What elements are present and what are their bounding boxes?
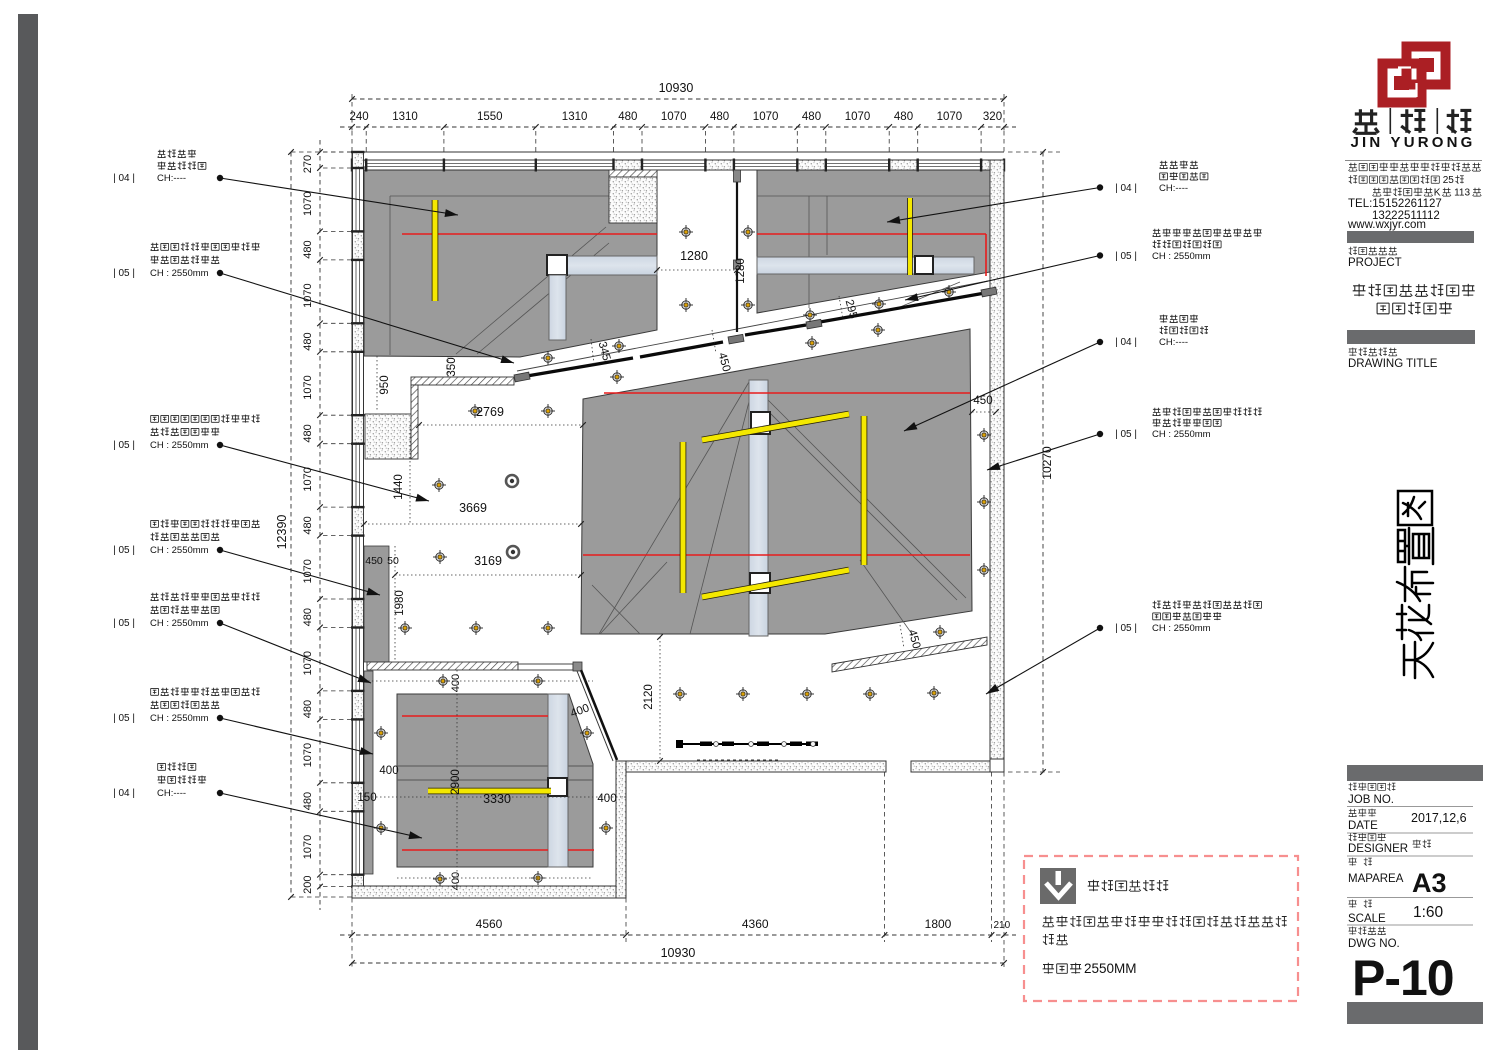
svg-text:SCALE: SCALE (1348, 913, 1386, 925)
svg-text:CH : 2550mm: CH : 2550mm (150, 713, 209, 724)
svg-text:| 04 |: | 04 | (1115, 183, 1137, 194)
svg-text:| 05 |: | 05 | (1115, 623, 1137, 634)
svg-text:K: K (1434, 188, 1441, 199)
svg-text:CH : 2550mm: CH : 2550mm (150, 440, 209, 451)
svg-text:CH : 2550mm: CH : 2550mm (150, 545, 209, 556)
svg-text:CH:----: CH:---- (157, 788, 186, 799)
svg-text:| 04 |: | 04 | (1115, 337, 1137, 348)
svg-text:www.wxjyr.com: www.wxjyr.com (1347, 219, 1426, 231)
svg-text:DATE: DATE (1348, 820, 1378, 832)
svg-text:113: 113 (1454, 188, 1470, 199)
svg-text:| 05 |: | 05 | (1115, 429, 1137, 440)
svg-text:JOB NO.: JOB NO. (1348, 794, 1394, 806)
svg-text:CH:----: CH:---- (1159, 183, 1188, 194)
svg-text:CH : 2550mm: CH : 2550mm (1152, 429, 1211, 440)
svg-text:| 04 |: | 04 | (113, 788, 135, 799)
svg-text:CH:----: CH:---- (1159, 337, 1188, 348)
svg-text:CH : 2550mm: CH : 2550mm (1152, 623, 1211, 634)
svg-text:| 05 |: | 05 | (113, 440, 135, 451)
svg-text:DRAWING TITLE: DRAWING TITLE (1348, 358, 1438, 370)
svg-text:JIN YURONG: JIN YURONG (1350, 134, 1475, 151)
svg-text:| 05 |: | 05 | (113, 713, 135, 724)
svg-text:CH : 2550mm: CH : 2550mm (150, 618, 209, 629)
svg-text:P-10: P-10 (1352, 950, 1454, 1006)
svg-text:| 05 |: | 05 | (113, 268, 135, 279)
svg-text:1:60: 1:60 (1413, 904, 1444, 921)
svg-text:MAPAREA: MAPAREA (1348, 873, 1404, 885)
svg-text:2550MM: 2550MM (1084, 961, 1137, 976)
svg-text:PROJECT: PROJECT (1348, 257, 1402, 269)
svg-text:A3: A3 (1412, 868, 1447, 898)
svg-text:TEL:15152261127: TEL:15152261127 (1348, 198, 1442, 210)
svg-text:2017,12,6: 2017,12,6 (1411, 811, 1467, 825)
svg-text:| 05 |: | 05 | (113, 618, 135, 629)
svg-text:CH:----: CH:---- (157, 173, 186, 184)
svg-text:25: 25 (1443, 175, 1455, 186)
svg-text:DWG NO.: DWG NO. (1348, 938, 1400, 950)
svg-text:CH : 2550mm: CH : 2550mm (150, 268, 209, 279)
svg-text:| 04 |: | 04 | (113, 173, 135, 184)
svg-text:| 05 |: | 05 | (1115, 251, 1137, 262)
svg-text:| 05 |: | 05 | (113, 545, 135, 556)
svg-text:DESIGNER: DESIGNER (1348, 843, 1408, 855)
svg-text:CH : 2550mm: CH : 2550mm (1152, 251, 1211, 262)
